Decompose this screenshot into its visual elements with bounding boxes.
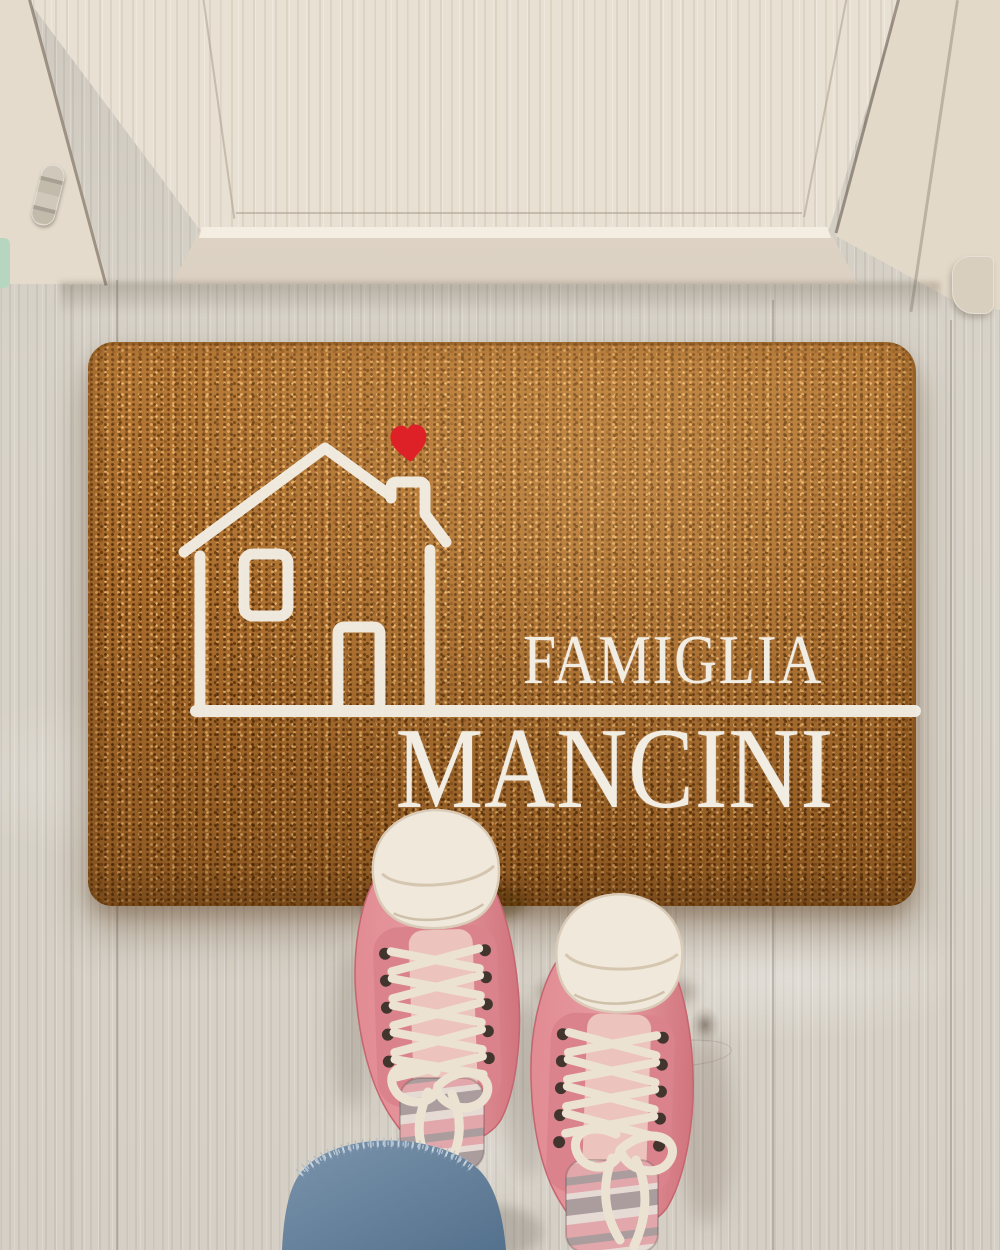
floor-plank-seam	[950, 320, 952, 1250]
doormat-line2: MANCINI	[396, 719, 821, 819]
doormat-line1: FAMIGLIA	[461, 626, 886, 696]
photo-scene: FAMIGLIA MANCINI	[0, 0, 1000, 1250]
door-frame-foot	[952, 256, 994, 314]
floor-grain	[639, 1037, 733, 1069]
floor-plank-seam	[70, 285, 72, 1250]
door	[0, 0, 1000, 360]
wall-sliver	[0, 238, 10, 288]
floor-knot	[690, 1006, 720, 1044]
